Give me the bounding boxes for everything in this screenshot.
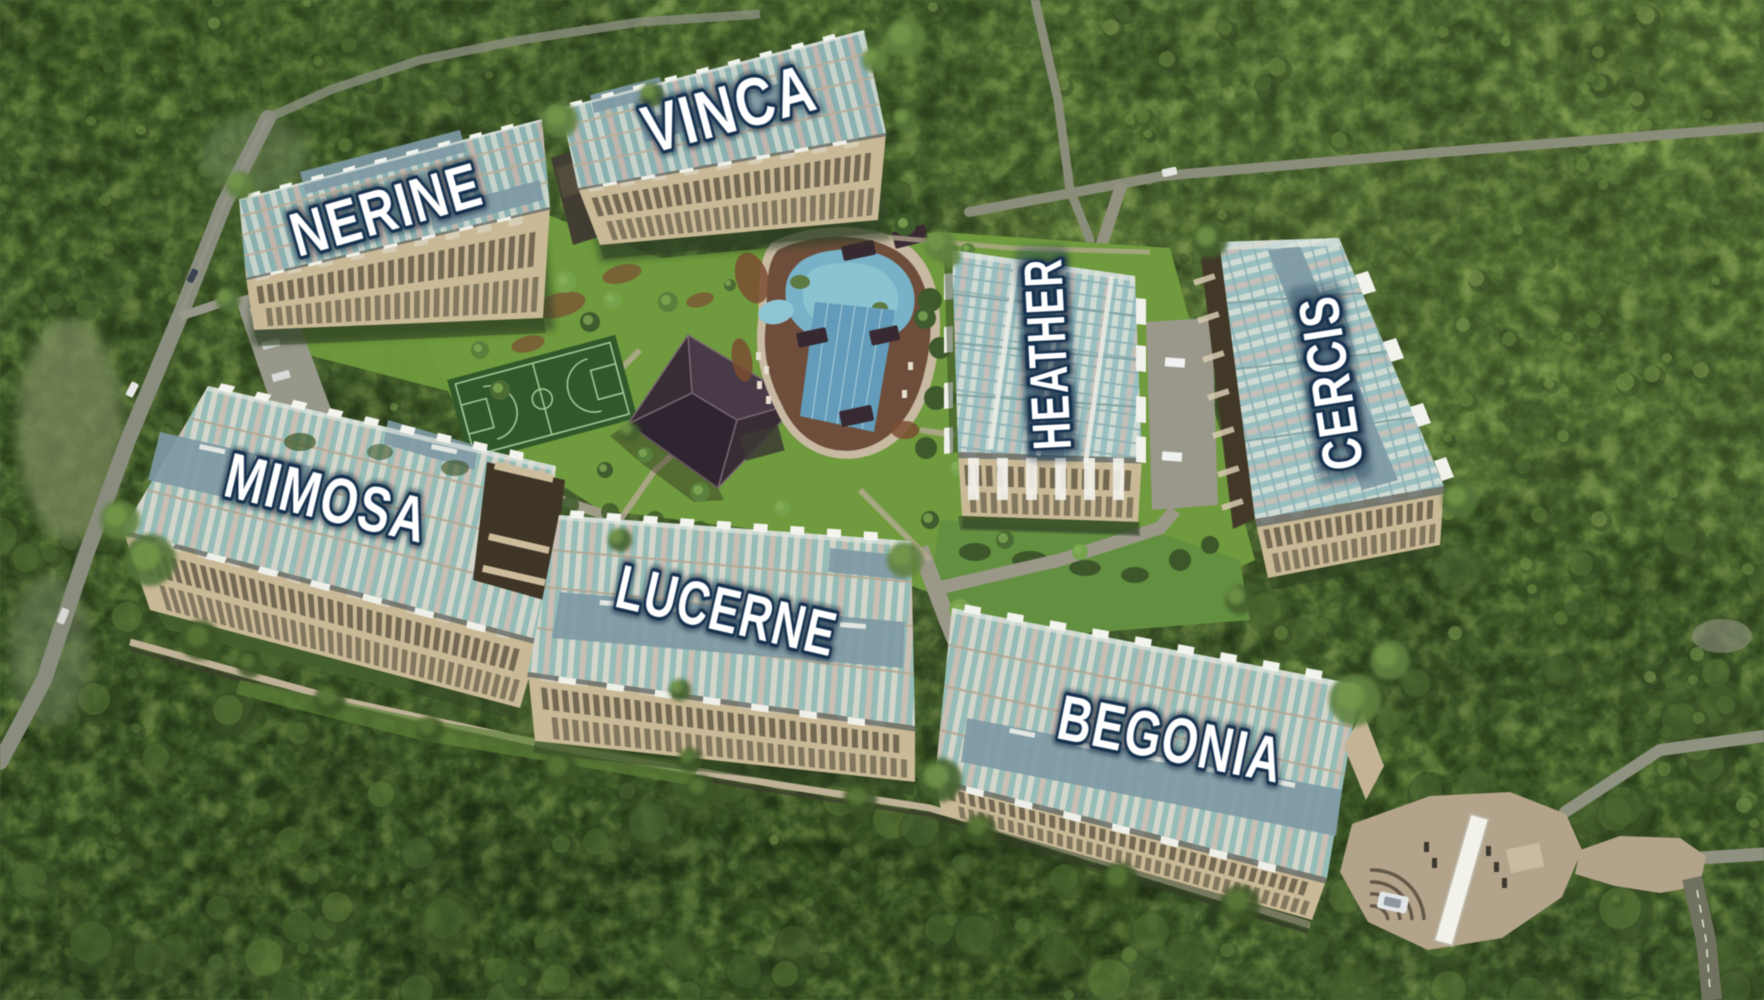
svg-text:HEATHER: HEATHER: [1013, 257, 1083, 452]
